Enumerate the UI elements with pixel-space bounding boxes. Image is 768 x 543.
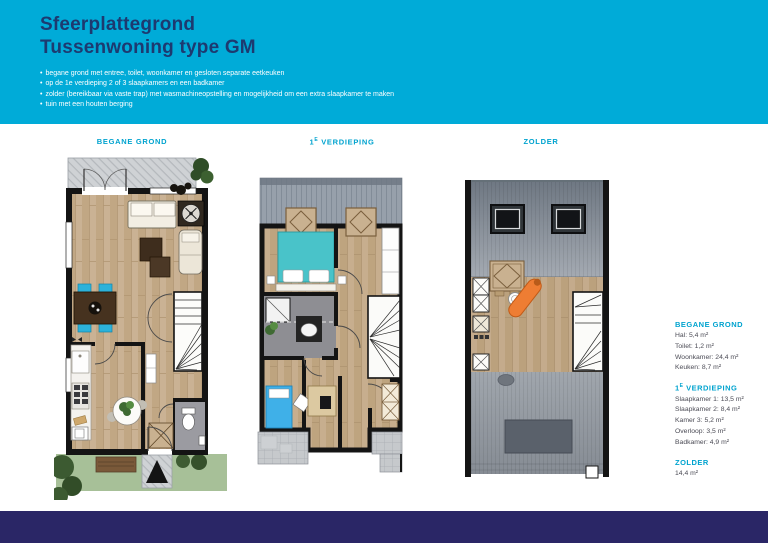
- single-bed: [266, 386, 292, 428]
- feature-bullet: •op de 1e verdieping 2 of 3 slaapkamers …: [40, 79, 394, 89]
- legend-item: Slaapkamer 2: 8,4 m²: [675, 405, 768, 416]
- storage-cupboards: [473, 278, 489, 370]
- legend-item: Badkamer: 4,9 m²: [675, 438, 768, 449]
- legend-heading: Zolder: [675, 458, 768, 467]
- legend-section-zolder: Zolder 14,4 m²: [675, 458, 768, 480]
- washing-machine-mark: [485, 335, 489, 339]
- feature-bullet: •tuin met een houten berging: [40, 100, 394, 110]
- dormer-window: [346, 208, 376, 236]
- wardrobe: [382, 384, 399, 420]
- bullet-dot-icon: •: [40, 91, 42, 98]
- legend-item: Slaapkamer 1: 13,5 m²: [675, 395, 768, 406]
- plan-label-zolder: Zolder: [523, 137, 558, 146]
- sofa: [128, 201, 176, 228]
- hall-cabinet: [146, 354, 156, 383]
- washing-machine-mark: [480, 335, 484, 339]
- garden: [54, 454, 227, 500]
- garden-bench: [96, 457, 136, 472]
- side-wall: [603, 180, 609, 477]
- footer-band: [0, 511, 768, 543]
- legend-items: Hal: 5,4 m² Toilet: 1,2 m² Woonkamer: 24…: [675, 331, 768, 374]
- page-title: Sfeerplattegrond Tussenwoning type GM: [40, 13, 256, 59]
- plan-label-begane-grond: Begane grond: [97, 137, 168, 146]
- legend-item: Woonkamer: 24,4 m²: [675, 353, 768, 364]
- legend-items: 14,4 m²: [675, 469, 768, 480]
- roof-vent: [498, 375, 514, 386]
- plan-label-1e-verdieping: 1e verdieping: [310, 137, 375, 147]
- legend-items: Slaapkamer 1: 13,5 m² Slaapkamer 2: 8,4 …: [675, 395, 768, 449]
- legend-heading: 1e verdieping: [675, 383, 768, 393]
- legend-item: Overloop: 3,5 m²: [675, 427, 768, 438]
- feature-bullet: •begane grond met entree, toilet, woonka…: [40, 69, 394, 79]
- bush: [176, 454, 190, 468]
- legend-item: Hal: 5,4 m²: [675, 331, 768, 342]
- roof-band: [260, 178, 402, 228]
- roof-panel: [505, 420, 572, 453]
- legend-item: Keuken: 8,7 m²: [675, 363, 768, 374]
- header-band: Sfeerplattegrond Tussenwoning type GM •b…: [0, 0, 768, 124]
- floorplan-zolder: [463, 177, 611, 479]
- room-area-legend: Begane grond Hal: 5,4 m² Toilet: 1,2 m² …: [675, 320, 768, 488]
- bullet-dot-icon: •: [40, 101, 42, 108]
- staircase: [174, 292, 202, 371]
- plant: [270, 322, 278, 330]
- roof-window: [552, 205, 585, 233]
- side-wall: [465, 180, 471, 477]
- page-title-line1: Sfeerplattegrond: [40, 13, 256, 36]
- feature-bullet: •zolder (bereikbaar via vaste trap) met …: [40, 90, 394, 100]
- staircase: [368, 296, 400, 378]
- rear-roof-slope: [471, 372, 603, 478]
- floorplan-begane-grond: [54, 155, 229, 500]
- bullet-dot-icon: •: [40, 70, 42, 77]
- washing-machine-mark: [474, 335, 478, 339]
- bush: [191, 454, 207, 470]
- staircase: [573, 292, 603, 371]
- legend-item: 14,4 m²: [675, 469, 768, 480]
- chaise-longue: [179, 230, 202, 274]
- bathroom: [264, 296, 336, 358]
- bullet-dot-icon: •: [40, 80, 42, 87]
- kitchen-counter: [71, 337, 91, 440]
- floorplan-1e-verdieping: [256, 170, 406, 475]
- legend-section-begane-grond: Begane grond Hal: 5,4 m² Toilet: 1,2 m² …: [675, 320, 768, 374]
- legend-item: Kamer 3: 5,2 m²: [675, 416, 768, 427]
- feature-bullet-list: •begane grond met entree, toilet, woonka…: [40, 69, 394, 111]
- dormer-table: [490, 261, 524, 296]
- legend-item: Toilet: 1,2 m²: [675, 342, 768, 353]
- legend-section-1e-verdieping: 1e verdieping Slaapkamer 1: 13,5 m² Slaa…: [675, 383, 768, 448]
- washbasin: [301, 324, 317, 337]
- legend-heading: Begane grond: [675, 320, 768, 329]
- side-table-stove: [178, 201, 204, 226]
- closet: [382, 228, 399, 294]
- brochure-page: Sfeerplattegrond Tussenwoning type GM •b…: [0, 0, 768, 543]
- page-title-line2: Tussenwoning type GM: [40, 36, 256, 59]
- toilet-room: [175, 402, 205, 450]
- coffee-table: [150, 257, 170, 277]
- window-left: [66, 222, 72, 268]
- cooktop: [72, 383, 89, 409]
- roof-window: [491, 205, 524, 233]
- chimney: [586, 466, 598, 478]
